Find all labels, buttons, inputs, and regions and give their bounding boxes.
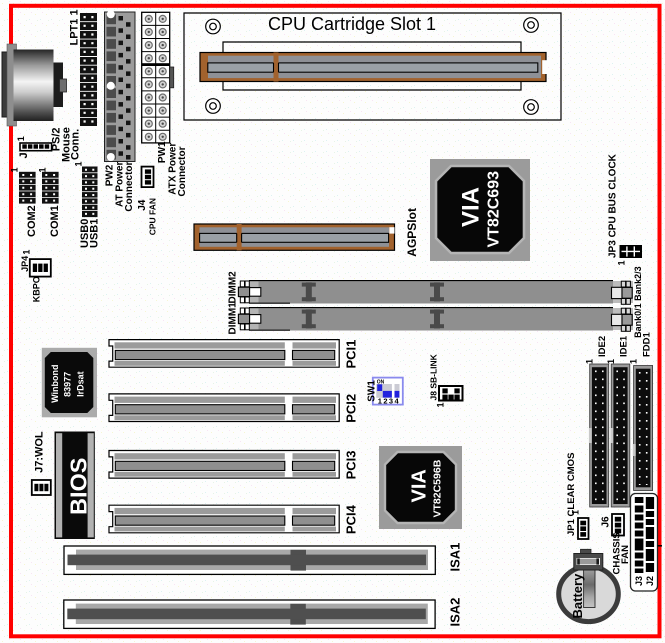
- svg-text:IrDsat: IrDsat: [76, 371, 86, 397]
- svg-text:1: 1: [74, 161, 84, 166]
- svg-text:1: 1: [10, 167, 20, 172]
- svg-text:1: 1: [436, 402, 446, 407]
- svg-text:ISA1: ISA1: [448, 543, 463, 572]
- svg-text:JP1 CLEAR CMOS: JP1 CLEAR CMOS: [566, 453, 577, 536]
- svg-text:Connector: Connector: [177, 146, 188, 196]
- svg-text:J7:WOL: J7:WOL: [34, 431, 46, 473]
- svg-text:1: 1: [606, 359, 616, 364]
- svg-text:VIA: VIA: [409, 469, 431, 502]
- svg-text:1: 1: [585, 359, 595, 364]
- svg-text:VT82C596B: VT82C596B: [432, 459, 444, 517]
- svg-text:FAN: FAN: [620, 545, 631, 564]
- svg-text:Connector: Connector: [124, 161, 135, 211]
- svg-text:J2: J2: [645, 576, 655, 586]
- svg-text:DIMM2: DIMM2: [228, 271, 239, 304]
- svg-text:2: 2: [383, 397, 387, 406]
- svg-text:BIOS: BIOS: [66, 458, 92, 515]
- svg-text:PCI2: PCI2: [344, 394, 359, 423]
- svg-text:1: 1: [378, 397, 382, 406]
- svg-text:IDE1: IDE1: [619, 335, 630, 357]
- svg-text:PCI4: PCI4: [344, 504, 359, 534]
- svg-text:1: 1: [22, 250, 32, 255]
- svg-text:3: 3: [389, 397, 393, 406]
- svg-text:J8 SB-LINK: J8 SB-LINK: [429, 353, 439, 400]
- svg-text:ISA2: ISA2: [448, 598, 463, 627]
- svg-text:IDE2: IDE2: [597, 336, 608, 357]
- svg-text:FDD1: FDD1: [642, 331, 653, 357]
- svg-text:1: 1: [16, 136, 26, 141]
- svg-text:J3: J3: [634, 576, 644, 586]
- svg-text:J4: J4: [137, 199, 148, 211]
- svg-text:Winbond: Winbond: [50, 364, 60, 402]
- svg-text:SW1: SW1: [367, 380, 378, 402]
- svg-text:JP4: JP4: [20, 256, 30, 272]
- svg-text:CPU Cartridge Slot 1: CPU Cartridge Slot 1: [268, 14, 436, 34]
- svg-text:PCI3: PCI3: [344, 450, 359, 479]
- svg-text:CPU FAN: CPU FAN: [148, 198, 158, 235]
- svg-text:J: J: [18, 152, 30, 158]
- svg-text:USB1: USB1: [88, 219, 100, 248]
- svg-text:J6: J6: [601, 516, 612, 528]
- svg-text:VIA: VIA: [458, 187, 485, 227]
- svg-text:PCI1: PCI1: [344, 340, 359, 369]
- svg-text:AGPSlot: AGPSlot: [405, 208, 419, 257]
- svg-text:Bank0/1 Bank2/3: Bank0/1 Bank2/3: [633, 266, 643, 338]
- svg-text:KBPO: KBPO: [32, 276, 42, 302]
- svg-text:Battery: Battery: [570, 573, 585, 619]
- svg-text:DIMM1: DIMM1: [228, 302, 239, 335]
- svg-text:COM1: COM1: [49, 205, 61, 237]
- svg-text:LPT1 1: LPT1 1: [69, 9, 81, 45]
- svg-text:1: 1: [38, 167, 48, 172]
- svg-text:VT82C693: VT82C693: [486, 171, 503, 248]
- svg-text:1: 1: [571, 510, 581, 515]
- svg-text:JP3 CPU BUS CLOCK: JP3 CPU BUS CLOCK: [608, 153, 619, 258]
- svg-text:1: 1: [617, 260, 627, 265]
- svg-text:1: 1: [629, 359, 639, 364]
- svg-text:COM2: COM2: [26, 205, 38, 237]
- svg-text:Conn.: Conn.: [70, 129, 82, 160]
- svg-text:83977: 83977: [63, 372, 73, 397]
